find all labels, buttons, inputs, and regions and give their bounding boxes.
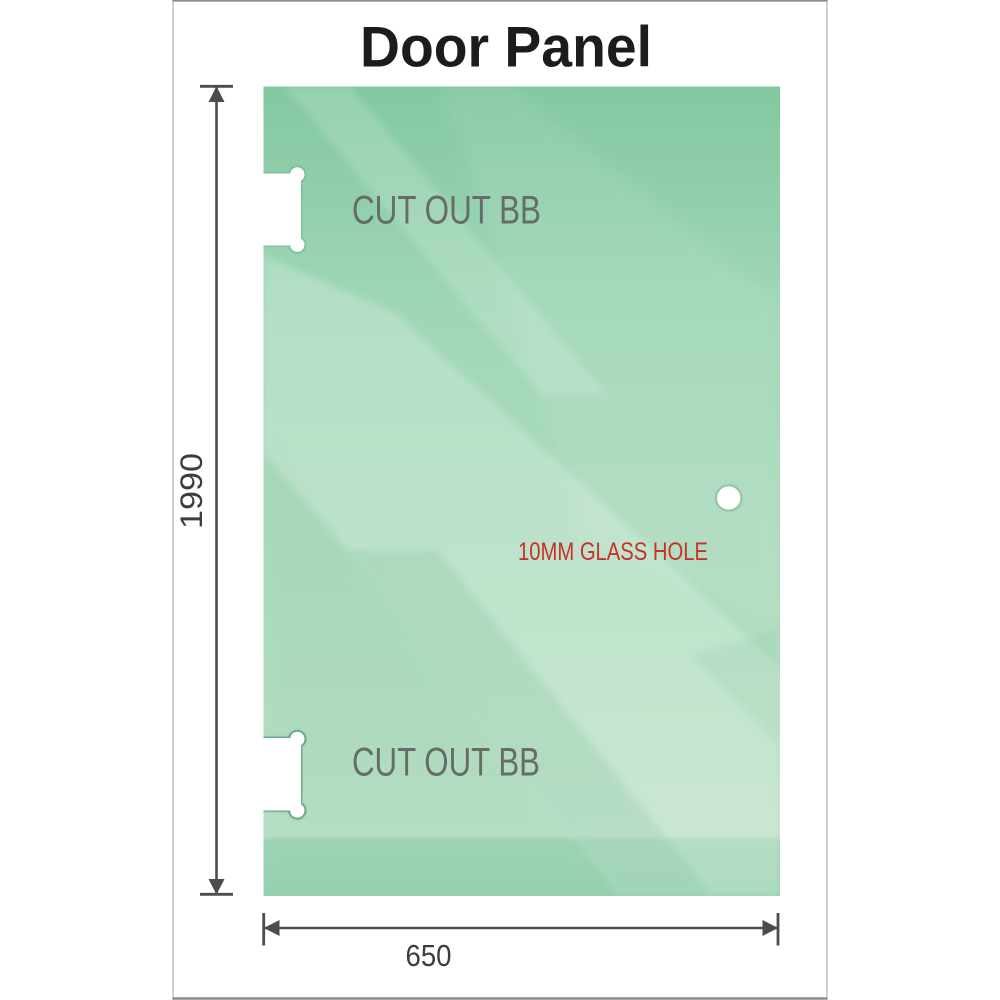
svg-text:CUT OUT BB: CUT OUT BB xyxy=(352,189,541,233)
svg-text:CUT OUT BB: CUT OUT BB xyxy=(352,741,540,785)
svg-text:Door Panel: Door Panel xyxy=(360,16,652,80)
svg-text:1990: 1990 xyxy=(173,453,209,529)
svg-text:10MM GLASS HOLE: 10MM GLASS HOLE xyxy=(518,538,708,566)
svg-text:650: 650 xyxy=(406,939,452,973)
